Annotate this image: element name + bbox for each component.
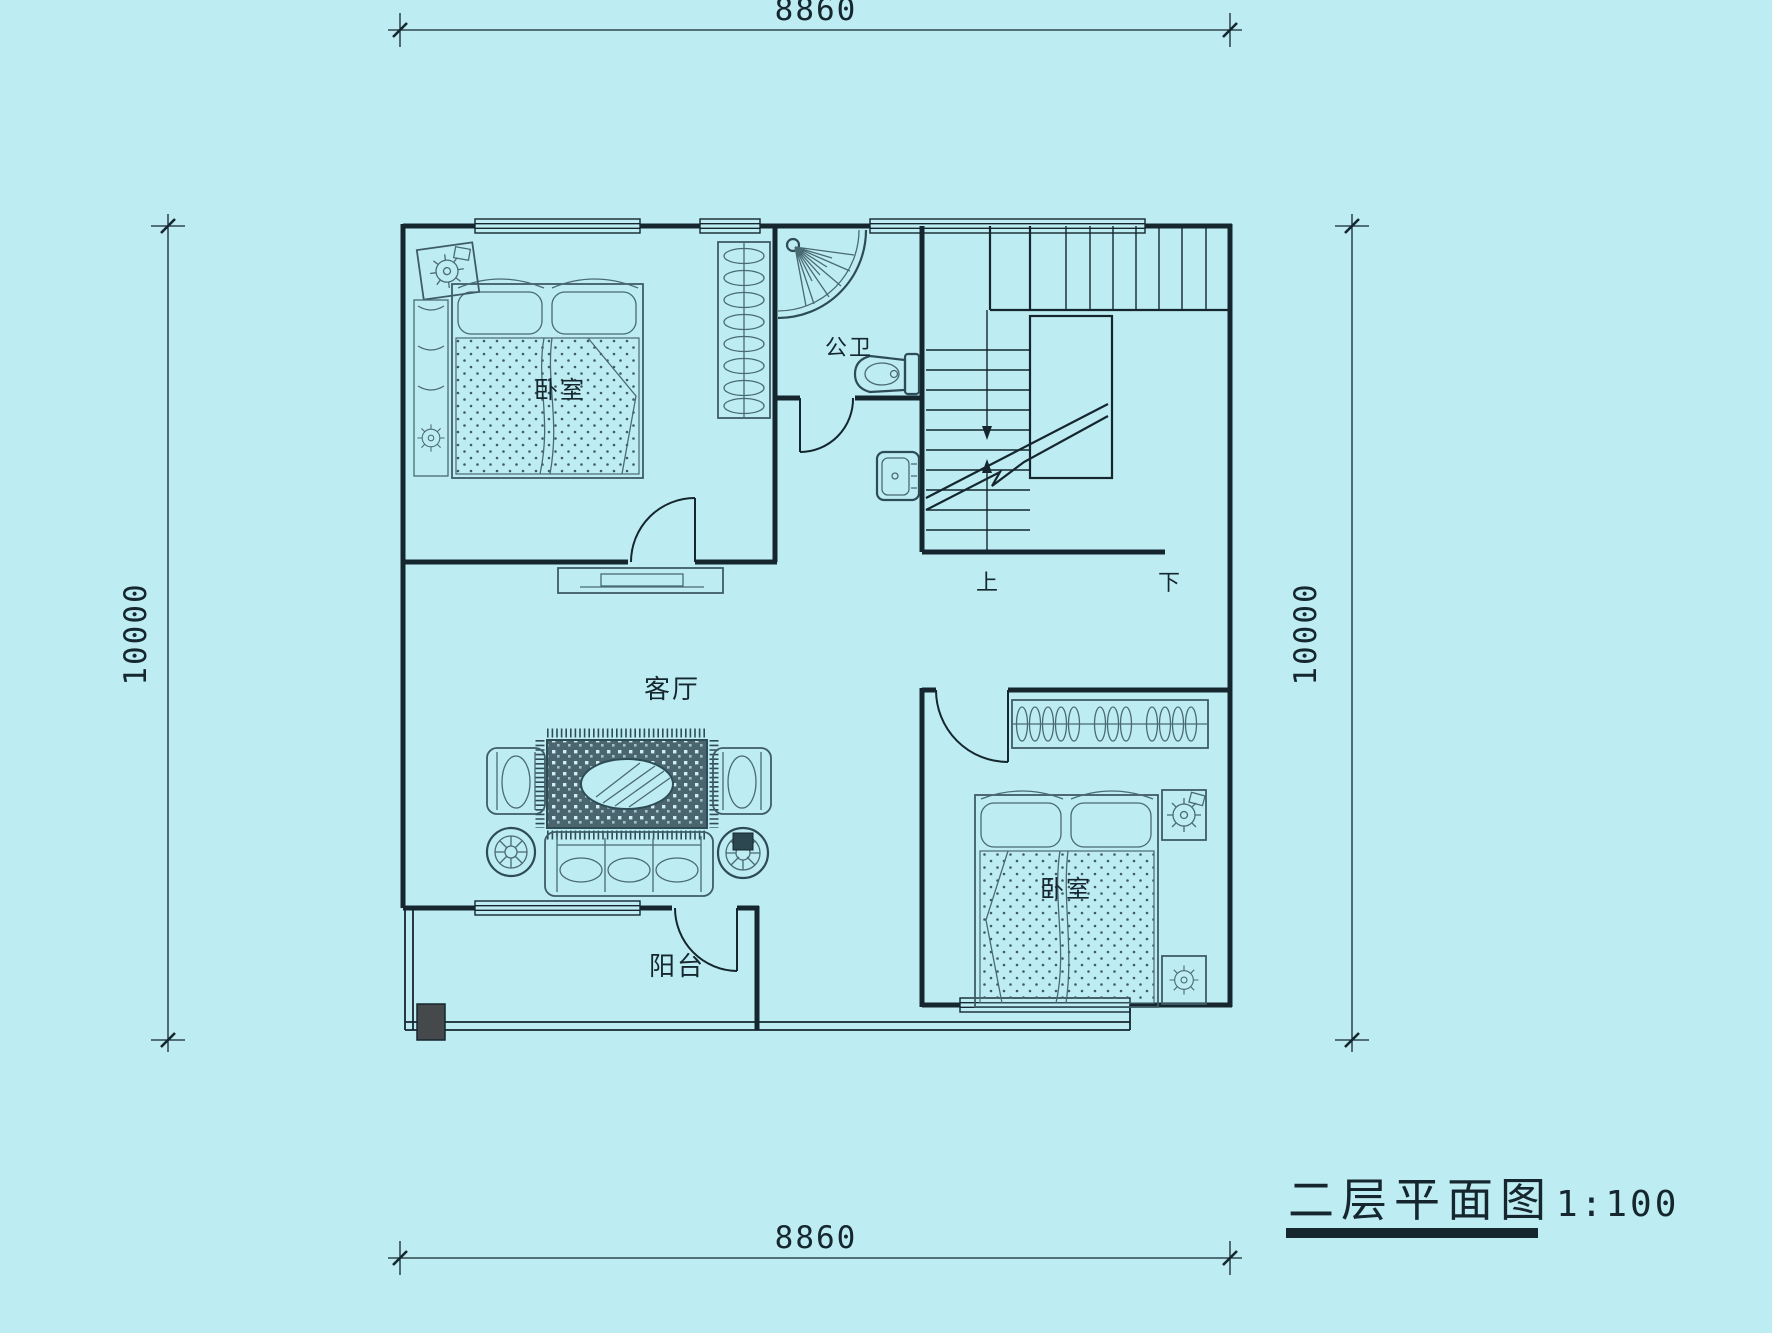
stair-direction-arrows xyxy=(982,310,992,553)
coffee-table-icon xyxy=(581,759,673,809)
window-bedroom-top xyxy=(475,219,640,233)
sink-icon xyxy=(877,452,919,500)
room-label-bathroom: 公卫 xyxy=(825,336,873,361)
dimension-right: 10000 xyxy=(1288,214,1369,1052)
rug-icon xyxy=(540,733,714,835)
title-block: 二层平面图 1:100 xyxy=(1286,1173,1679,1238)
dimension-top-value: 8860 xyxy=(775,0,858,28)
armchair-icon-right xyxy=(713,748,771,814)
floor-plan-page: 8860 8860 10000 10000 xyxy=(0,0,1772,1333)
plan-scale: 1:100 xyxy=(1556,1184,1679,1225)
bench-icon xyxy=(414,300,448,476)
dimension-bottom: 8860 xyxy=(388,1220,1242,1275)
window-living xyxy=(475,901,640,915)
door-bathroom xyxy=(800,398,853,452)
nightstand-lamp-icon-bottom xyxy=(1162,790,1206,840)
stair-label-down: 下 xyxy=(1158,571,1182,596)
shower-icon xyxy=(778,230,866,318)
stair-break-line xyxy=(926,404,1108,510)
room-label-living: 客厅 xyxy=(644,675,700,705)
nightstand-icon-bottom xyxy=(1162,956,1206,1004)
staircase: 上 下 xyxy=(926,226,1230,596)
floor-plan-svg: 8860 8860 10000 10000 xyxy=(0,0,1772,1333)
stair-label-up: 上 xyxy=(976,571,1000,596)
door-bedroom-top xyxy=(631,498,695,562)
dimension-right-value: 10000 xyxy=(1288,582,1324,685)
room-label-bedroom-bottom: 卧室 xyxy=(1040,875,1092,903)
window-stairwell xyxy=(870,219,1145,233)
plant-icon-right xyxy=(718,828,768,878)
window-bathroom xyxy=(700,219,760,233)
room-label-bedroom-top: 卧室 xyxy=(534,376,586,404)
plan-title: 二层平面图 xyxy=(1288,1173,1553,1227)
plant-icon-left xyxy=(487,828,535,876)
sofa-icon xyxy=(545,832,713,896)
room-label-balcony: 阳台 xyxy=(649,952,705,982)
nightstand-lamp-icon-top xyxy=(417,242,479,299)
door-bedroom-bottom xyxy=(936,690,1008,762)
armchair-icon-left xyxy=(487,748,545,814)
dimension-left: 10000 xyxy=(118,214,185,1052)
dimension-left-value: 10000 xyxy=(118,582,154,685)
wardrobe-icon-top xyxy=(718,242,770,418)
tv-cabinet-icon xyxy=(558,568,723,593)
dimension-top: 8860 xyxy=(388,0,1242,47)
column-marker xyxy=(417,1004,445,1040)
title-underline xyxy=(1286,1228,1538,1238)
wardrobe-icon-bottom xyxy=(1012,700,1208,748)
dimension-bottom-value: 8860 xyxy=(775,1220,858,1256)
stair-landing xyxy=(1030,316,1112,478)
